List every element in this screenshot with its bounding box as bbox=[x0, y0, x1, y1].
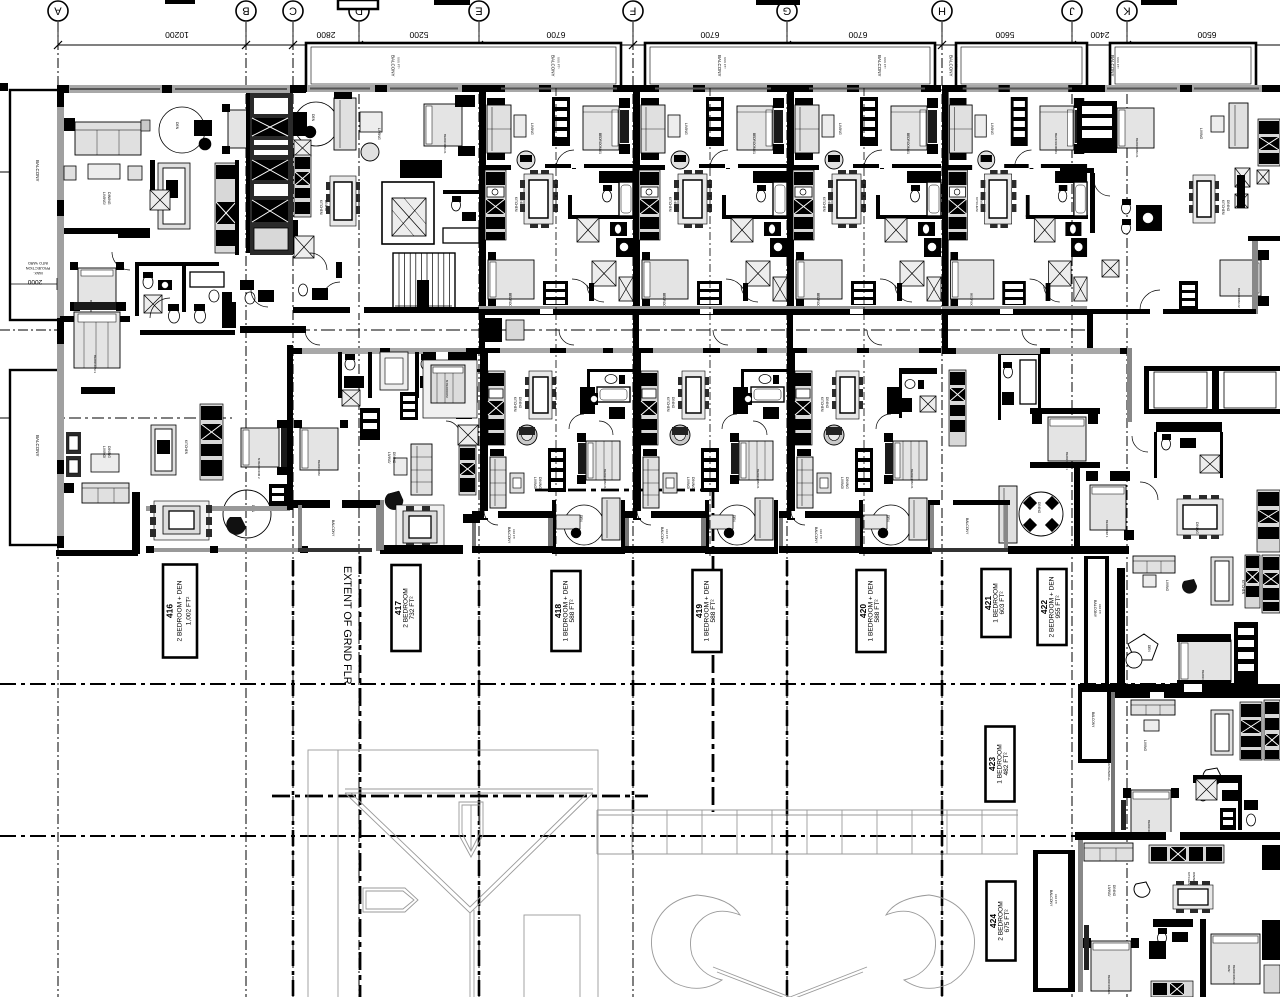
svg-text:DINING: DINING bbox=[107, 446, 111, 458]
svg-text:424: 424 bbox=[988, 914, 998, 928]
svg-text:423: 423 bbox=[987, 757, 997, 771]
svg-text:BEDROOM #2: BEDROOM #2 bbox=[1232, 965, 1236, 985]
svg-text:2 BEDROOM + DEN: 2 BEDROOM + DEN bbox=[177, 580, 184, 641]
svg-text:K: K bbox=[1123, 5, 1131, 17]
svg-text:BALCONY: BALCONY bbox=[949, 55, 954, 77]
svg-text:XXX FT²: XXX FT² bbox=[955, 57, 959, 69]
svg-text:5600: 5600 bbox=[995, 30, 1014, 40]
svg-text:LIVING: LIVING bbox=[1165, 580, 1169, 591]
svg-text:A: A bbox=[54, 5, 62, 17]
svg-text:420: 420 bbox=[858, 604, 868, 618]
svg-text:2400: 2400 bbox=[1090, 30, 1109, 40]
svg-text:603 FT²: 603 FT² bbox=[999, 591, 1006, 615]
svg-text:DINING: DINING bbox=[107, 192, 111, 205]
svg-text:BALCONY: BALCONY bbox=[717, 55, 722, 77]
svg-text:482 FT²: 482 FT² bbox=[1003, 752, 1010, 776]
svg-text:E: E bbox=[475, 5, 482, 17]
svg-text:2800: 2800 bbox=[316, 30, 335, 40]
svg-text:588 FT²: 588 FT² bbox=[710, 599, 717, 623]
svg-text:1,002 FT²: 1,002 FT² bbox=[186, 596, 193, 625]
svg-text:MAX.: MAX. bbox=[33, 271, 42, 275]
svg-text:BEDROOM #2: BEDROOM #2 bbox=[1237, 288, 1241, 308]
svg-text:419: 419 bbox=[694, 604, 704, 618]
svg-text:BALCONY: BALCONY bbox=[331, 520, 335, 537]
svg-text:XXX FT²: XXX FT² bbox=[1098, 604, 1102, 614]
svg-text:KITCHEN/: KITCHEN/ bbox=[319, 200, 323, 215]
svg-text:DEN: DEN bbox=[175, 122, 179, 130]
svg-text:416: 416 bbox=[165, 604, 175, 618]
svg-text:PROJECTION: PROJECTION bbox=[26, 266, 51, 270]
svg-text:KITCHEN: KITCHEN bbox=[1241, 580, 1245, 595]
svg-text:DINING: DINING bbox=[1226, 200, 1230, 212]
svg-text:BEDROOM 1: BEDROOM 1 bbox=[1105, 520, 1109, 538]
svg-text:BALCONY: BALCONY bbox=[35, 435, 40, 457]
svg-text:INTO YARD: INTO YARD bbox=[28, 261, 49, 265]
svg-text:BEDROOM #1: BEDROOM #1 bbox=[1135, 138, 1139, 158]
svg-text:BALCONY: BALCONY bbox=[551, 55, 556, 77]
svg-text:588 FT²: 588 FT² bbox=[569, 599, 576, 623]
svg-text:732 FT²: 732 FT² bbox=[409, 596, 416, 620]
svg-text:BEDROOM 1: BEDROOM 1 bbox=[1065, 452, 1069, 470]
svg-text:DINING: DINING bbox=[1195, 522, 1199, 534]
svg-text:BALCONY: BALCONY bbox=[1091, 712, 1095, 728]
svg-text:LIVING/: LIVING/ bbox=[102, 446, 106, 458]
svg-text:6700: 6700 bbox=[700, 30, 719, 40]
svg-text:DEN: DEN bbox=[311, 114, 315, 122]
svg-text:422: 422 bbox=[1039, 600, 1049, 614]
svg-text:LIVING/: LIVING/ bbox=[387, 452, 391, 463]
svg-text:F: F bbox=[629, 5, 636, 17]
svg-text:G: G bbox=[783, 5, 792, 17]
svg-text:955 FT²: 955 FT² bbox=[1055, 595, 1062, 619]
svg-text:6500: 6500 bbox=[1197, 30, 1216, 40]
svg-text:6700: 6700 bbox=[546, 30, 565, 40]
svg-text:LIVING: LIVING bbox=[377, 128, 381, 140]
svg-text:BALCONY: BALCONY bbox=[35, 160, 40, 182]
svg-text:C: C bbox=[289, 5, 297, 17]
svg-text:421: 421 bbox=[983, 596, 993, 610]
svg-text:DEN/: DEN/ bbox=[1227, 965, 1231, 972]
svg-text:LIVING: LIVING bbox=[1143, 740, 1147, 751]
svg-text:XXX FT²: XXX FT² bbox=[883, 57, 887, 69]
svg-text:KITCHEN/: KITCHEN/ bbox=[1221, 200, 1225, 215]
svg-text:BALCONY: BALCONY bbox=[965, 518, 969, 535]
svg-text:LIVING/: LIVING/ bbox=[102, 192, 106, 205]
svg-text:M BEDROOM: M BEDROOM bbox=[445, 380, 449, 398]
svg-text:10200: 10200 bbox=[165, 30, 189, 40]
svg-text:BEDROOM: BEDROOM bbox=[317, 460, 321, 476]
svg-text:M BEDROOM 2: M BEDROOM 2 bbox=[257, 458, 261, 479]
svg-text:675 FT²: 675 FT² bbox=[1004, 909, 1011, 933]
svg-text:6700: 6700 bbox=[848, 30, 867, 40]
svg-text:KITCHEN: KITCHEN bbox=[184, 440, 188, 455]
svg-text:BALCONY: BALCONY bbox=[1093, 600, 1097, 618]
svg-text:XXX FT²: XXX FT² bbox=[397, 57, 401, 69]
svg-text:BEDROOM #1: BEDROOM #1 bbox=[1107, 975, 1111, 995]
svg-text:BALCONY: BALCONY bbox=[1110, 55, 1115, 77]
svg-text:BEDROOM 3: BEDROOM 3 bbox=[93, 355, 97, 373]
svg-text:EXTENT OF GRND FLR: EXTENT OF GRND FLR bbox=[341, 566, 353, 685]
svg-text:BALCONY: BALCONY bbox=[1049, 890, 1053, 907]
svg-text:5200: 5200 bbox=[409, 30, 428, 40]
svg-text:DINING: DINING bbox=[1037, 502, 1041, 514]
svg-text:BALCONY: BALCONY bbox=[877, 55, 882, 77]
svg-text:417: 417 bbox=[393, 601, 403, 615]
svg-text:418: 418 bbox=[553, 604, 563, 618]
svg-text:H: H bbox=[938, 5, 946, 17]
svg-text:BALCONY: BALCONY bbox=[391, 55, 396, 77]
svg-text:J: J bbox=[1069, 5, 1075, 17]
svg-text:XXX FT²: XXX FT² bbox=[557, 57, 561, 69]
svg-text:XXX FT²: XXX FT² bbox=[1054, 894, 1058, 904]
svg-text:DINING: DINING bbox=[1112, 885, 1116, 897]
svg-text:CURTAINWALL: CURTAINWALL bbox=[1107, 760, 1111, 781]
svg-text:DEN: DEN bbox=[1147, 645, 1151, 652]
svg-text:LIVING/: LIVING/ bbox=[1107, 885, 1111, 896]
svg-text:LIVING: LIVING bbox=[1199, 128, 1203, 139]
svg-text:DINING: DINING bbox=[392, 452, 396, 464]
svg-text:588 FT²: 588 FT² bbox=[874, 599, 881, 623]
svg-text:XXX FT²: XXX FT² bbox=[1116, 57, 1120, 69]
svg-text:BEDROOM #1: BEDROOM #1 bbox=[443, 134, 447, 154]
svg-text:B: B bbox=[242, 5, 249, 17]
svg-text:XXX FT²: XXX FT² bbox=[723, 57, 727, 69]
